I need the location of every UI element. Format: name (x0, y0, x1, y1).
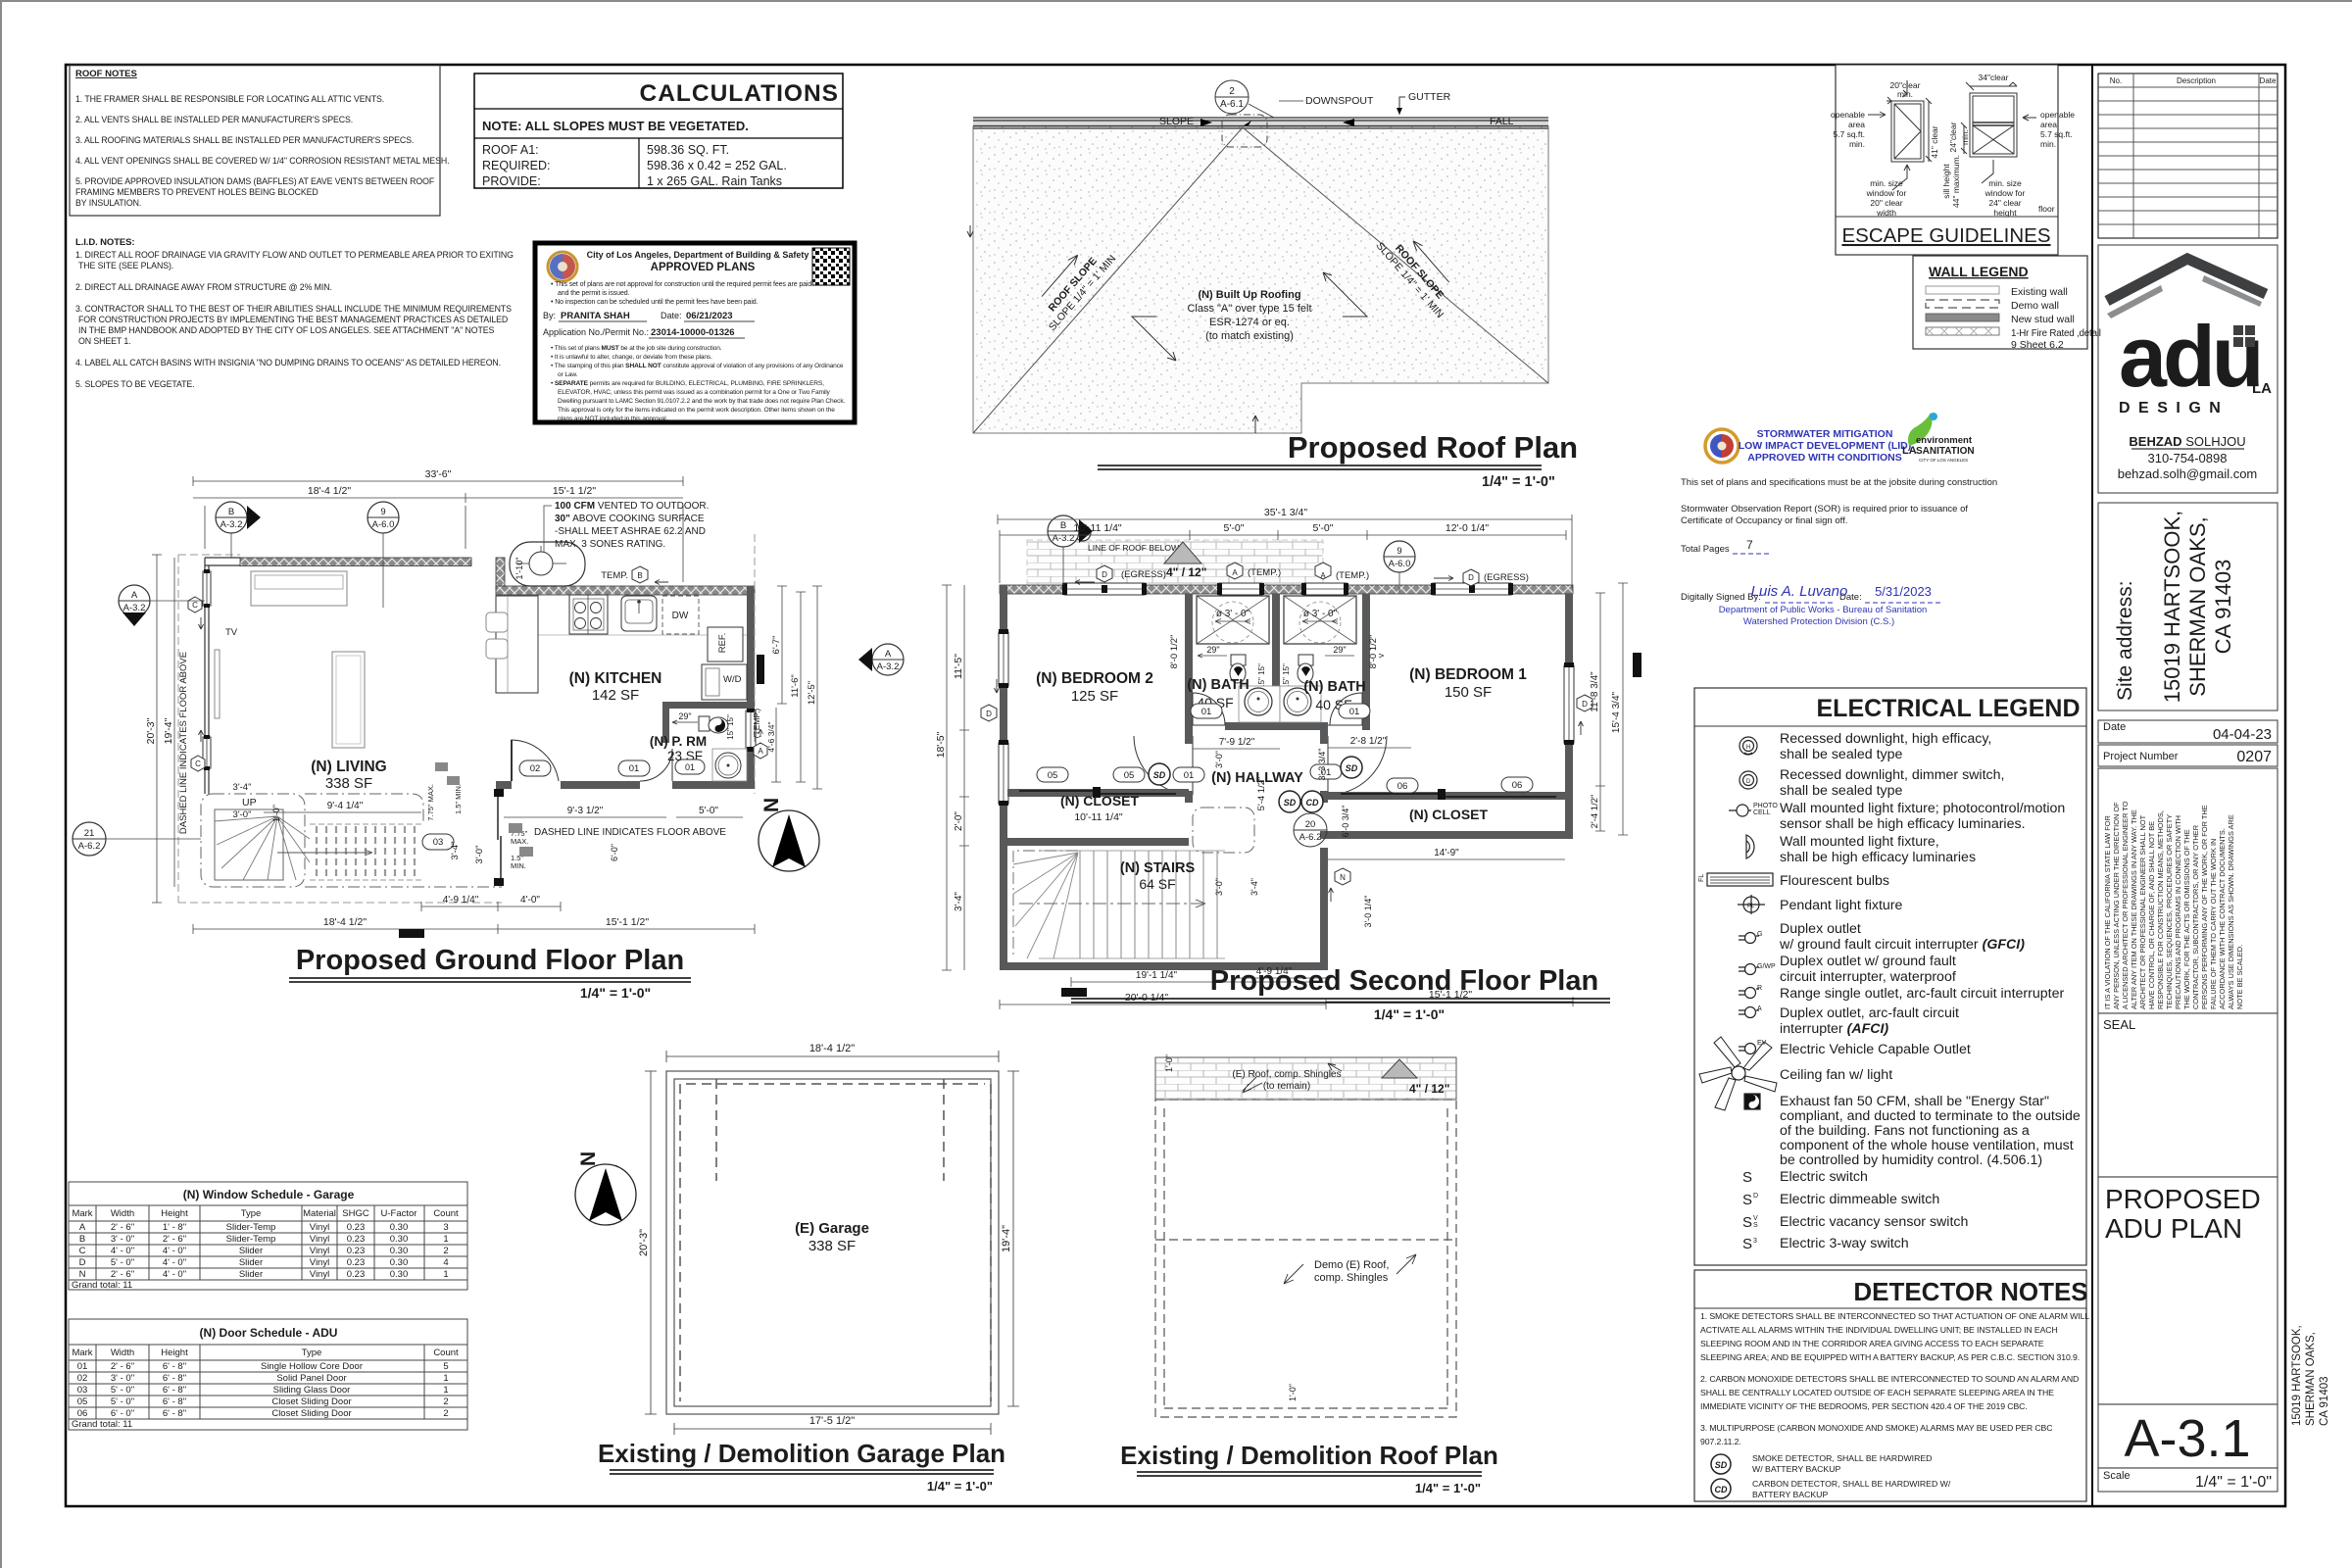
svg-text:ALTER ANY ITEM ON THESE DRAWIN: ALTER ANY ITEM ON THESE DRAWINGS IN ANY … (2130, 809, 2138, 1009)
svg-text:D: D (1102, 570, 1107, 579)
svg-text:01: 01 (77, 1361, 88, 1372)
svg-text:LOW IMPACT DEVELOPMENT (LID): LOW IMPACT DEVELOPMENT (LID) (1739, 440, 1912, 452)
svg-text:0.23: 0.23 (347, 1269, 366, 1280)
svg-text:LA: LA (1902, 445, 1917, 457)
svg-text:ø 3' - 0": ø 3' - 0" (1303, 609, 1338, 619)
svg-text:DASHED LINE INDICATES FLOOR AB: DASHED LINE INDICATES FLOOR ABOVE (534, 827, 726, 838)
svg-text:20" clear: 20" clear (1870, 198, 1902, 208)
svg-text:SHALL BE CENTRALLY LOCATED OUT: SHALL BE CENTRALLY LOCATED OUTSIDE OF EA… (1700, 1388, 2054, 1397)
svg-text:area: area (2040, 120, 2057, 129)
svg-text:S: S (1742, 1236, 1752, 1252)
svg-text:4" / 12": 4" / 12" (1166, 565, 1206, 579)
svg-text:ESCAPE GUIDELINES: ESCAPE GUIDELINES (1841, 224, 2050, 247)
svg-text:SLOPE: SLOPE (1159, 116, 1194, 127)
svg-text:(to match existing): (to match existing) (1205, 330, 1294, 342)
svg-text:W/ BATTERY BACKUP: W/ BATTERY BACKUP (1752, 1464, 1840, 1474)
svg-text:ELECTRICAL LEGEND: ELECTRICAL LEGEND (1817, 695, 2081, 722)
svg-text:20: 20 (1305, 819, 1316, 830)
svg-text:SD: SD (1346, 763, 1358, 773)
svg-text:907.2.11.2.: 907.2.11.2. (1700, 1437, 1741, 1446)
svg-text:Slider-Temp: Slider-Temp (226, 1234, 276, 1245)
svg-text:STORMWATER MITIGATION: STORMWATER MITIGATION (1757, 428, 1893, 440)
svg-text:B: B (1060, 520, 1066, 531)
svg-text:This set of plans and specific: This set of plans and specifications mus… (1681, 477, 1997, 488)
svg-text:Material: Material (303, 1208, 336, 1219)
svg-text:6' - 8": 6' - 8" (163, 1373, 186, 1384)
svg-text:2: 2 (443, 1396, 448, 1407)
svg-text:11'-6": 11'-6" (790, 674, 801, 698)
svg-text:310-754-0898: 310-754-0898 (2148, 451, 2228, 465)
svg-text:06/21/2023: 06/21/2023 (686, 311, 733, 321)
svg-text:01: 01 (629, 763, 640, 774)
svg-text:15'-1 1/2": 15'-1 1/2" (606, 916, 650, 928)
svg-text:Duplex outlet w/ ground fault: Duplex outlet w/ ground fault (1780, 954, 1956, 969)
svg-text:3. ALL ROOFING MATERIALS SHALL: 3. ALL ROOFING MATERIALS SHALL BE INSTAL… (75, 135, 414, 145)
svg-text:floor: floor (2038, 204, 2055, 214)
svg-text:Mark: Mark (72, 1347, 92, 1358)
svg-text:0.23: 0.23 (347, 1234, 366, 1245)
svg-text:U-Factor: U-Factor (381, 1208, 417, 1219)
svg-text:sensor shall be high efficacy: sensor shall be high efficacy luminaries… (1780, 816, 2026, 832)
svg-text:05: 05 (1124, 770, 1135, 781)
svg-text:-SHALL MEET ASHRAE 62.2 AND: -SHALL MEET ASHRAE 62.2 AND (555, 526, 706, 537)
svg-text:WALL LEGEND: WALL LEGEND (1929, 264, 2029, 279)
svg-text:N: N (79, 1269, 86, 1280)
svg-text:SD: SD (1284, 798, 1297, 808)
svg-text:B: B (79, 1234, 85, 1245)
svg-text:(TEMP.): (TEMP.) (1248, 567, 1281, 578)
svg-text:5/31/2023: 5/31/2023 (1875, 584, 1932, 599)
svg-text:THE WORK, FOR THE ACTS OR OMIS: THE WORK, FOR THE ACTS OR OMISSIONS OF T… (2182, 829, 2191, 1009)
svg-text:• SEPARATE permits are requir: • SEPARATE permits are required for BUIL… (551, 380, 824, 387)
svg-text:4: 4 (443, 1257, 448, 1268)
svg-text:NOTE: ALL SLOPES MUST BE VEGET: NOTE: ALL SLOPES MUST BE VEGETATED. (482, 119, 749, 133)
svg-text:3'-0": 3'-0" (1214, 878, 1224, 896)
svg-text:1/4" = 1'-0": 1/4" = 1'-0" (2195, 1474, 2272, 1491)
svg-text:SHGC: SHGC (342, 1208, 369, 1219)
svg-text:G/WP: G/WP (1757, 963, 1776, 970)
svg-text:24" clear: 24" clear (1988, 198, 2021, 208)
svg-text:• This set of plans MUST be a: • This set of plans MUST be at the job s… (551, 345, 722, 352)
svg-text:BEHZAD SOLHJOU: BEHZAD SOLHJOU (2129, 434, 2245, 449)
svg-text:6' - 8": 6' - 8" (163, 1361, 186, 1372)
svg-text:EV: EV (1757, 1040, 1767, 1047)
svg-text:20'-3": 20'-3" (145, 717, 157, 744)
svg-text:R: R (1757, 985, 1762, 992)
svg-text:A-6.1: A-6.1 (1220, 99, 1244, 110)
svg-text:6'-0": 6'-0" (610, 844, 619, 861)
svg-text:V: V (1753, 1215, 1758, 1222)
svg-text:19'-1 1/4": 19'-1 1/4" (1136, 970, 1178, 981)
svg-text:Vinyl: Vinyl (310, 1234, 329, 1245)
svg-text:18'-4 1/2": 18'-4 1/2" (308, 485, 352, 497)
svg-text:circuit interrupter, waterproo: circuit interrupter, waterproof (1780, 969, 1956, 985)
svg-text:ANY PERSON, UNLESS ACTING UNDE: ANY PERSON, UNLESS ACTING UNDER THE DIRE… (2112, 802, 2121, 1009)
svg-text:5'-0": 5'-0" (1224, 522, 1245, 534)
svg-text:A-3.2: A-3.2 (877, 661, 900, 672)
svg-text:MAX.: MAX. (511, 837, 528, 846)
svg-text:338 SF: 338 SF (325, 775, 372, 792)
svg-text:environment: environment (1916, 435, 1973, 446)
svg-text:APPROVED PLANS: APPROVED PLANS (651, 262, 756, 273)
svg-text:04-04-23: 04-04-23 (2213, 726, 2272, 743)
svg-text:sill height: sill height (1941, 164, 1951, 199)
svg-text:17'-5 1/2": 17'-5 1/2" (809, 1415, 855, 1427)
svg-text:06: 06 (1397, 781, 1408, 792)
svg-text:C: C (192, 601, 198, 610)
svg-text:Electric switch: Electric switch (1780, 1169, 1868, 1185)
svg-text:1. DIRECT ALL ROOF DRAINAGE VI: 1. DIRECT ALL ROOF DRAINAGE VIA GRAVITY … (75, 250, 514, 260)
svg-text:Recessed downlight, dimmer swi: Recessed downlight, dimmer switch, (1780, 767, 2004, 783)
svg-text:03: 03 (77, 1385, 88, 1396)
svg-text:2. CARBON MONOXIDE DETECTORS S: 2. CARBON MONOXIDE DETECTORS SHALL BE IN… (1700, 1374, 2079, 1384)
svg-text:0207: 0207 (2236, 749, 2272, 765)
svg-text:0.30: 0.30 (390, 1269, 409, 1280)
svg-text:SHERMAN OAKS,: SHERMAN OAKS, (2305, 1332, 2317, 1426)
svg-text:05: 05 (77, 1396, 88, 1407)
svg-text:A-6.0: A-6.0 (1389, 559, 1411, 569)
svg-text:(N) LIVING: (N) LIVING (311, 759, 387, 775)
svg-text:A: A (1232, 568, 1238, 577)
svg-text:9: 9 (380, 507, 385, 517)
svg-text:Class "A" over type 15 felt: Class "A" over type 15 felt (1187, 303, 1311, 315)
svg-text:0.30: 0.30 (390, 1222, 409, 1233)
svg-text:Pendant light fixture: Pendant light fixture (1780, 898, 1903, 913)
svg-text:0.30: 0.30 (390, 1234, 409, 1245)
svg-text:height: height (1993, 208, 2017, 218)
svg-text:19'-4": 19'-4" (163, 717, 174, 744)
svg-text:8'-0 1/2": 8'-0 1/2" (1368, 635, 1379, 669)
svg-text:3: 3 (1753, 1238, 1757, 1245)
svg-text:D: D (79, 1257, 86, 1268)
svg-text:DASHED LINE INDICATES FLOOR AB: DASHED LINE INDICATES FLOOR ABOVE (178, 652, 189, 834)
svg-text:w/ ground fault circuit interr: w/ ground fault circuit interrupter (GFC… (1779, 937, 2025, 953)
svg-text:(N) CLOSET: (N) CLOSET (1060, 793, 1140, 808)
svg-text:Slider: Slider (239, 1257, 263, 1268)
svg-text:02: 02 (530, 763, 541, 774)
svg-text:FRAMING MEMBERS TO PREVENT HOL: FRAMING MEMBERS TO PREVENT HOLES BEING B… (75, 187, 318, 197)
svg-text:12'-5": 12'-5" (807, 681, 817, 705)
svg-text:DESIGN: DESIGN (2119, 400, 2229, 416)
svg-text:5'-0": 5'-0" (699, 806, 718, 816)
svg-text:A: A (758, 747, 763, 756)
svg-text:29": 29" (1206, 645, 1219, 655)
svg-text:CITY OF LOS ANGELES: CITY OF LOS ANGELES (1919, 458, 1968, 463)
svg-text:3'-0": 3'-0" (1214, 751, 1224, 768)
svg-text:15'-4 3/4": 15'-4 3/4" (1611, 691, 1622, 733)
svg-text:10'-11 1/4": 10'-11 1/4" (1074, 811, 1123, 823)
svg-text:9: 9 (1396, 546, 1401, 557)
svg-text:City of Los Angeles, Departmen: City of Los Angeles, Department of Build… (587, 250, 809, 260)
svg-text:openable: openable (2040, 110, 2075, 120)
svg-text:1: 1 (443, 1373, 448, 1384)
svg-text:Slider: Slider (239, 1246, 263, 1256)
svg-text:• No inspection can be schedu: • No inspection can be scheduled until t… (551, 299, 759, 306)
svg-text:N: N (760, 798, 783, 812)
svg-text:5'-0": 5'-0" (1313, 522, 1334, 534)
svg-text:FL: FL (1698, 874, 1705, 882)
svg-text:2' - 6": 2' - 6" (163, 1234, 186, 1245)
svg-text:6' - 8": 6' - 8" (163, 1408, 186, 1419)
svg-text:12'-0 1/4": 12'-0 1/4" (1445, 522, 1490, 534)
svg-text:SLEEPING ROOM AND IN THE CORRI: SLEEPING ROOM AND IN THE CORRIDOR AREA G… (1700, 1339, 2044, 1348)
svg-text:4'-0": 4'-0" (520, 895, 540, 906)
svg-text:14'-9": 14'-9" (1434, 848, 1459, 858)
svg-text:be controlled by humidity cont: be controlled by humidity control. (4.50… (1780, 1152, 2042, 1168)
svg-text:15'-1 1/2": 15'-1 1/2" (553, 485, 597, 497)
svg-text:Existing / Demolition Garage P: Existing / Demolition Garage Plan (598, 1439, 1005, 1468)
svg-text:HAVE CONTROL, OR CHARGE OF, AN: HAVE CONTROL, OR CHARGE OF, AND SHALL NO… (2147, 821, 2156, 1009)
svg-text:23014-10000-01326: 23014-10000-01326 (651, 327, 735, 338)
svg-text:Electric dimmeable switch: Electric dimmeable switch (1780, 1192, 1939, 1207)
svg-text:6' - 0": 6' - 0" (111, 1408, 134, 1419)
svg-text:Duplex outlet: Duplex outlet (1780, 921, 1861, 937)
svg-text:min.: min. (1960, 129, 1970, 145)
svg-text:06: 06 (1512, 780, 1523, 791)
svg-text:Digitally Signed By:: Digitally Signed By: (1681, 592, 1761, 603)
svg-text:C: C (195, 759, 201, 768)
svg-text:shall be high efficacy luminar: shall be high efficacy luminaries (1780, 850, 1976, 865)
svg-text:Vinyl: Vinyl (310, 1246, 329, 1256)
svg-text:7'-9 1/2": 7'-9 1/2" (1219, 737, 1255, 748)
svg-text:Existing / Demolition Roof Pla: Existing / Demolition Roof Plan (1120, 1441, 1498, 1470)
svg-text:Ceiling fan w/ light: Ceiling fan w/ light (1780, 1067, 1892, 1083)
svg-text:3'-4": 3'-4" (1249, 878, 1259, 896)
svg-text:Range single outlet, arc-fault: Range single outlet, arc-fault circuit i… (1780, 986, 2064, 1002)
svg-text:behzad.solh@gmail.com: behzad.solh@gmail.com (2118, 466, 2258, 481)
svg-text:Certificate of Occupancy or fi: Certificate of Occupancy or final sign o… (1681, 515, 1847, 526)
svg-text:142 SF: 142 SF (592, 687, 639, 704)
svg-text:A-6.0: A-6.0 (372, 519, 395, 530)
svg-text:G: G (1757, 931, 1762, 938)
svg-text:1: 1 (443, 1269, 448, 1280)
svg-text:(E) Garage: (E) Garage (795, 1220, 869, 1237)
svg-text:Exhaust fan 50 CFM, shall be ": Exhaust fan 50 CFM, shall be "Energy Sta… (1780, 1094, 2049, 1109)
svg-text:LINE OF ROOF BELOW: LINE OF ROOF BELOW (1088, 543, 1179, 553)
svg-text:Count: Count (433, 1208, 459, 1219)
svg-text:Vinyl: Vinyl (310, 1222, 329, 1233)
svg-text:Site address:: Site address: (2114, 580, 2136, 701)
svg-text:TV: TV (225, 627, 238, 638)
svg-text:4" / 12": 4" / 12" (1409, 1082, 1449, 1096)
svg-text:1'-0": 1'-0" (1164, 1054, 1174, 1072)
svg-text:Grand total: 11: Grand total: 11 (72, 1419, 132, 1430)
svg-text:CD: CD (1715, 1485, 1728, 1494)
svg-text:shall be sealed type: shall be sealed type (1780, 747, 1903, 762)
svg-text:2' - 6": 2' - 6" (111, 1361, 134, 1372)
svg-text:2: 2 (443, 1408, 448, 1419)
svg-text:3'-0": 3'-0" (233, 809, 252, 820)
svg-text:15019 HARTSOOK,: 15019 HARTSOOK, (2160, 511, 2184, 703)
svg-text:1/4" = 1'-0": 1/4" = 1'-0" (1374, 1006, 1445, 1022)
svg-text:component of the whole house v: component of the whole house ventilation… (1780, 1138, 2074, 1153)
svg-text:IT IS A VIOLATION OF THE CALIF: IT IS A VIOLATION OF THE CALIFORNIA STAT… (2103, 815, 2112, 1009)
svg-text:Wall mounted light fixture; ph: Wall mounted light fixture; photocontrol… (1780, 801, 2065, 816)
svg-text:Slider-Temp: Slider-Temp (226, 1222, 276, 1233)
svg-text:SD: SD (1153, 770, 1166, 780)
svg-text:min.: min. (1849, 139, 1865, 149)
svg-text:6'-0 3/4": 6'-0 3/4" (1341, 806, 1350, 838)
svg-text:PERSONS PERFORMING ANY OF THE: PERSONS PERFORMING ANY OF THE WORK, OR F… (2200, 805, 2209, 1009)
svg-text:15" 15": 15" 15" (1257, 663, 1266, 689)
svg-text:(N) Window Schedule - Garage: (N) Window Schedule - Garage (183, 1188, 355, 1201)
svg-text:Flourescent bulbs: Flourescent bulbs (1780, 873, 1889, 889)
svg-text:D: D (1746, 779, 1751, 785)
svg-text:Department of Public Works -: Department of Public Works - Bureau of S… (1719, 605, 1928, 615)
svg-text:Type: Type (302, 1347, 322, 1358)
svg-text:5' - 0": 5' - 0" (111, 1257, 134, 1268)
svg-text:(N) P. RM: (N) P. RM (650, 734, 707, 749)
svg-text:(N) Built Up Roofing: (N) Built Up Roofing (1198, 289, 1300, 301)
svg-text:ALWAYS USE DIMENSIONS AS SHOWN: ALWAYS USE DIMENSIONS AS SHOWN. DRAWINGS… (2227, 814, 2235, 1009)
svg-text:2'-0": 2'-0" (954, 811, 964, 831)
svg-text:2. ALL VENTS SHALL BE INSTALLE: 2. ALL VENTS SHALL BE INSTALLED PER MANU… (75, 115, 353, 124)
svg-text:D: D (1468, 573, 1474, 582)
svg-text:CARBON DETECTOR, SHALL BE HARD: CARBON DETECTOR, SHALL BE HARDWIRED W/ (1752, 1479, 1951, 1489)
svg-text:B: B (228, 507, 234, 517)
svg-text:No.: No. (2110, 76, 2122, 85)
svg-text:By:: By: (543, 311, 556, 320)
svg-text:1'-0": 1'-0" (271, 805, 281, 822)
svg-text:BATTERY BACKUP: BATTERY BACKUP (1752, 1490, 1828, 1499)
svg-text:Description: Description (2177, 76, 2216, 85)
svg-text:B: B (637, 571, 642, 580)
svg-text:This approval is only for the: This approval is only for the items indi… (558, 407, 835, 414)
svg-text:Proposed Roof Plan: Proposed Roof Plan (1288, 430, 1578, 465)
svg-text:ACCORDANCE WITH THE CONTRACT D: ACCORDANCE WITH THE CONTRACT DOCUMENTS. (2218, 828, 2227, 1009)
svg-text:64 SF: 64 SF (1139, 876, 1175, 892)
svg-text:Date: Date (2103, 721, 2126, 733)
svg-text:3'-4": 3'-4" (450, 842, 461, 860)
svg-text:7: 7 (1746, 538, 1753, 552)
svg-text:2'-8 1/2": 2'-8 1/2" (1350, 736, 1387, 747)
svg-text:(TEMP.): (TEMP.) (752, 709, 761, 739)
svg-text:10'-11 1/4": 10'-11 1/4" (1073, 522, 1122, 534)
svg-text:Demo wall: Demo wall (2011, 300, 2059, 312)
svg-text:Single Hollow Core Door: Single Hollow Core Door (261, 1361, 363, 1372)
svg-text:6'-7": 6'-7" (771, 636, 782, 655)
svg-text:Mark: Mark (72, 1208, 92, 1219)
svg-text:0.23: 0.23 (347, 1222, 366, 1233)
svg-text:A-3.1: A-3.1 (2124, 1409, 2250, 1468)
svg-text:01: 01 (1184, 770, 1195, 781)
svg-text:15" 15": 15" 15" (726, 714, 735, 740)
svg-text:11'-8 3/4": 11'-8 3/4" (1590, 671, 1600, 712)
svg-text:1'-10": 1'-10" (514, 558, 524, 580)
svg-text:REF.: REF. (717, 633, 728, 654)
svg-text:(N) STAIRS: (N) STAIRS (1120, 860, 1196, 876)
svg-text:7.75" MAX.: 7.75" MAX. (426, 784, 435, 821)
svg-text:3'-0 1/4": 3'-0 1/4" (1363, 896, 1373, 928)
svg-text:ROOF NOTES: ROOF NOTES (75, 69, 137, 79)
svg-text:4. LABEL ALL CATCH BASINS WITH: 4. LABEL ALL CATCH BASINS WITH INSIGNIA … (75, 358, 501, 367)
svg-text:TECHINQUES, SEQUENCES, PROCEDU: TECHINQUES, SEQUENCES, PROCEDURES OR SAF… (2165, 814, 2174, 1009)
svg-text:shall be sealed type: shall be sealed type (1780, 783, 1903, 799)
svg-text:(N) KITCHEN: (N) KITCHEN (569, 670, 662, 687)
svg-text:15019 HARTSOOK,: 15019 HARTSOOK, (2291, 1325, 2303, 1426)
svg-text:1 x 265 GAL. Rain Tanks: 1 x 265 GAL. Rain Tanks (647, 174, 782, 188)
svg-text:29": 29" (1333, 645, 1346, 655)
svg-text:4. ALL VENT OPENINGS SHALL BE: 4. ALL VENT OPENINGS SHALL BE COVERED W/… (75, 156, 449, 166)
svg-text:0.30: 0.30 (390, 1246, 409, 1256)
svg-text:PROVIDE:: PROVIDE: (482, 174, 541, 188)
svg-text:Luis A. Luvano: Luis A. Luvano (1751, 583, 1848, 600)
svg-text:ACTIVATE ALL ALARMS WITHIN THE: ACTIVATE ALL ALARMS WITHIN THE INDIVIDUA… (1700, 1325, 2058, 1335)
svg-text:A: A (1757, 1005, 1762, 1012)
svg-text:adu: adu (2119, 308, 2260, 405)
svg-text:9'-4 1/4": 9'-4 1/4" (327, 801, 364, 811)
svg-text:ROOF A1:: ROOF A1: (482, 143, 539, 157)
svg-text:S: S (1742, 1192, 1752, 1208)
svg-text:2. DIRECT ALL DRAINAGE AWAY FR: 2. DIRECT ALL DRAINAGE AWAY FROM STRUCTU… (75, 282, 332, 292)
svg-text:(N) BATH: (N) BATH (1187, 677, 1249, 693)
svg-text:min.: min. (2040, 139, 2056, 149)
svg-text:1. THE FRAMER SHALL BE RESPONS: 1. THE FRAMER SHALL BE RESPONSIBLE FOR L… (75, 94, 384, 104)
svg-text:• It is unlawful to alter, ch: • It is unlawful to alter, change, or de… (551, 354, 712, 361)
svg-text:0.30: 0.30 (390, 1257, 409, 1268)
svg-text:SD: SD (1715, 1460, 1728, 1470)
svg-text:11'-5": 11'-5" (953, 654, 964, 679)
svg-text:N: N (1340, 873, 1346, 882)
svg-text:New stud wall: New stud wall (2011, 314, 2075, 325)
svg-text:0.23: 0.23 (347, 1257, 366, 1268)
svg-text:19'-4": 19'-4" (1001, 1225, 1012, 1252)
svg-text:Stormwater Observation Report: Stormwater Observation Report (SOR) is r… (1681, 504, 1968, 514)
svg-text:06: 06 (77, 1408, 88, 1419)
svg-text:125 SF: 125 SF (1071, 688, 1118, 705)
svg-text:1' - 8": 1' - 8" (163, 1222, 186, 1233)
svg-text:REQUIRED:: REQUIRED: (482, 159, 550, 172)
svg-text:18'-5": 18'-5" (935, 731, 947, 758)
svg-text:21: 21 (84, 828, 95, 839)
svg-text:ON SHEET 1.: ON SHEET 1. (78, 336, 131, 346)
svg-text:A-6.2: A-6.2 (78, 841, 101, 852)
svg-text:Date: Date (2260, 76, 2277, 85)
svg-text:CONTRACTOR, SUBCONTRACTORS, OR: CONTRACTOR, SUBCONTRACTORS, OR ANY OTHER (2191, 825, 2200, 1009)
svg-text:PROPOSED: PROPOSED (2105, 1184, 2261, 1214)
svg-text:ESR-1274 or eq.: ESR-1274 or eq. (1209, 317, 1290, 328)
svg-text:1.5" MIN.: 1.5" MIN. (454, 784, 463, 814)
svg-text:APPROVED WITH CONDITIONS: APPROVED WITH CONDITIONS (1747, 452, 1902, 464)
svg-text:Demo (E) Roof,: Demo (E) Roof, (1314, 1259, 1389, 1271)
svg-text:min. size: min. size (1988, 178, 2022, 188)
svg-text:1: 1 (443, 1385, 448, 1396)
svg-text:A: A (131, 590, 138, 601)
svg-text:A-6.2: A-6.2 (1299, 832, 1322, 843)
svg-text:(EGRESS): (EGRESS) (1484, 572, 1529, 583)
svg-text:0.23: 0.23 (347, 1246, 366, 1256)
svg-text:Type: Type (241, 1208, 262, 1219)
svg-text:5' - 0": 5' - 0" (111, 1385, 134, 1396)
svg-text:598.36 SQ. FT.: 598.36 SQ. FT. (647, 143, 729, 157)
svg-text:H: H (1746, 745, 1750, 751)
svg-text:3'-3 3/4": 3'-3 3/4" (1317, 749, 1327, 781)
svg-text:FALL: FALL (1490, 116, 1514, 127)
svg-text:SMOKE DETECTOR, SHALL BE HARDW: SMOKE DETECTOR, SHALL BE HARDWIRED (1752, 1453, 1932, 1463)
svg-text:Wall mounted light fixture,: Wall mounted light fixture, (1780, 834, 1939, 850)
svg-text:CA 91403: CA 91403 (2319, 1376, 2330, 1426)
svg-text:W/D: W/D (723, 674, 742, 685)
svg-text:S: S (1753, 1222, 1758, 1229)
svg-text:L.I.D. NOTES:: L.I.D. NOTES: (75, 237, 134, 248)
svg-text:29": 29" (678, 711, 691, 721)
svg-text:ARCHITECT OR PROFESSIONAL ENGI: ARCHITECT OR PROFESSIONAL ENGINEER SHALL… (2138, 814, 2147, 1009)
svg-text:Closet Sliding Door: Closet Sliding Door (271, 1408, 351, 1419)
svg-text:Watershed Protection Division: Watershed Protection Division (C.S.) (1743, 616, 1894, 627)
svg-text:1. SMOKE DETECTORS SHALL BE IN: 1. SMOKE DETECTORS SHALL BE INTERCONNECT… (1700, 1311, 2089, 1321)
svg-text:5. PROVIDE APPROVED INSULATION: 5. PROVIDE APPROVED INSULATION DAMS (BAF… (75, 176, 435, 186)
svg-text:CALCULATIONS: CALCULATIONS (640, 80, 839, 107)
